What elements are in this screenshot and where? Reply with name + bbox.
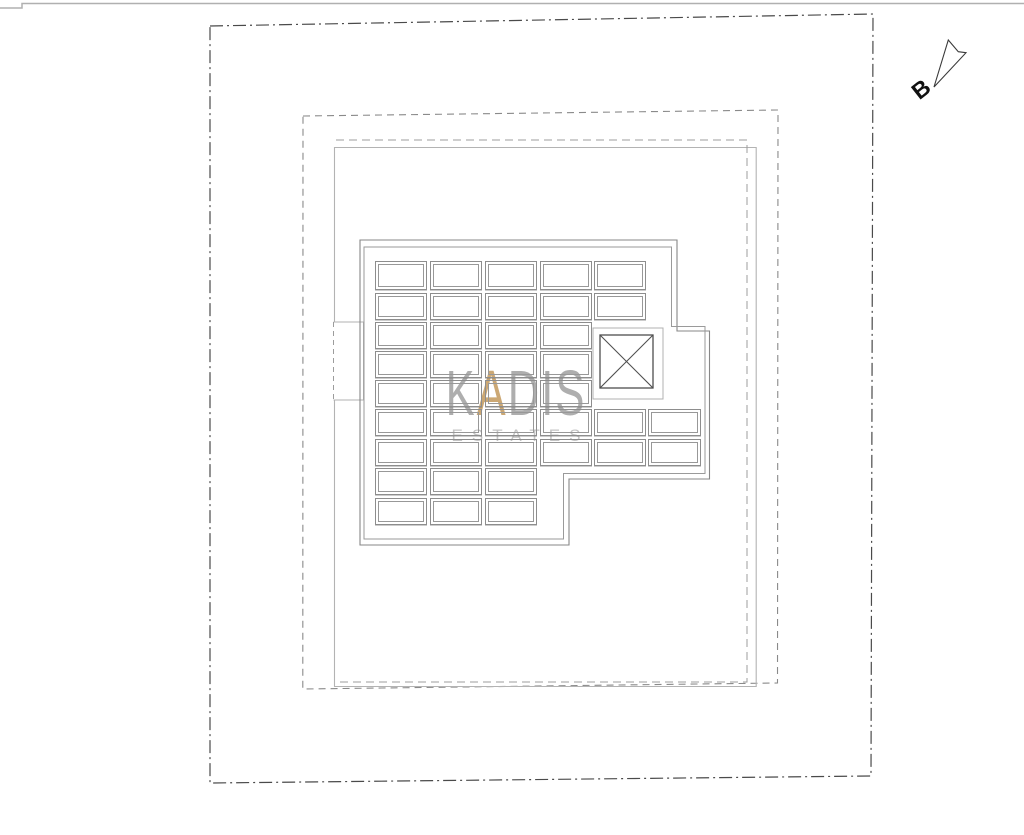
roof-panel-inner-frame	[488, 412, 535, 433]
roof-panel	[375, 351, 428, 378]
roof-panel	[648, 439, 701, 466]
roof-panel-inner-frame	[488, 325, 535, 346]
roof-panel-inner-frame	[433, 264, 480, 287]
roof-panel-inner-frame	[378, 412, 425, 433]
roof-panel	[594, 439, 647, 466]
roof-panel-inner-frame	[433, 325, 480, 346]
roof-panel-inner-frame	[378, 471, 425, 492]
roof-panel	[485, 439, 538, 466]
roof-panel-inner-frame	[488, 383, 535, 404]
roof-panel-inner-frame	[651, 442, 698, 463]
roof-panel	[430, 380, 483, 407]
roof-panel-grid	[0, 0, 1024, 835]
roof-panel	[540, 409, 593, 436]
roof-panel-inner-frame	[597, 442, 644, 463]
roof-panel-inner-frame	[433, 412, 480, 433]
roof-panel-inner-frame	[433, 383, 480, 404]
roof-panel	[375, 439, 428, 466]
roof-panel-inner-frame	[378, 296, 425, 317]
roof-panel	[594, 261, 647, 290]
roof-panel-inner-frame	[543, 442, 590, 463]
roof-panel-inner-frame	[378, 325, 425, 346]
roof-panel	[540, 439, 593, 466]
roof-panel	[540, 322, 593, 349]
roof-panel	[485, 409, 538, 436]
roof-panel-inner-frame	[488, 296, 535, 317]
roof-panel	[430, 261, 483, 290]
roof-panel-inner-frame	[488, 442, 535, 463]
roof-panel	[430, 322, 483, 349]
roof-panel	[594, 409, 647, 436]
roof-panel	[485, 351, 538, 378]
roof-panel-inner-frame	[488, 471, 535, 492]
roof-panel	[375, 468, 428, 495]
roof-panel	[375, 293, 428, 320]
roof-panel-inner-frame	[543, 383, 590, 404]
roof-panel	[648, 409, 701, 436]
roof-panel	[540, 380, 593, 407]
roof-panel	[375, 322, 428, 349]
roof-panel	[485, 380, 538, 407]
roof-panel-inner-frame	[378, 501, 425, 522]
roof-panel-inner-frame	[433, 471, 480, 492]
roof-panel-inner-frame	[488, 354, 535, 375]
roof-panel	[430, 468, 483, 495]
floor-plan-canvas: KADIS ESTATES B	[0, 0, 1024, 835]
roof-panel	[485, 468, 538, 495]
roof-panel-inner-frame	[597, 264, 644, 287]
roof-panel-inner-frame	[543, 296, 590, 317]
roof-panel-inner-frame	[433, 296, 480, 317]
roof-panel-inner-frame	[597, 412, 644, 433]
roof-panel	[430, 351, 483, 378]
roof-panel-inner-frame	[488, 501, 535, 522]
roof-panel-inner-frame	[378, 264, 425, 287]
roof-panel	[485, 293, 538, 320]
roof-panel	[430, 293, 483, 320]
roof-panel	[430, 439, 483, 466]
roof-panel-inner-frame	[543, 354, 590, 375]
roof-panel	[485, 261, 538, 290]
roof-panel	[540, 261, 593, 290]
roof-panel	[375, 409, 428, 436]
roof-panel	[540, 351, 593, 378]
roof-panel	[430, 498, 483, 525]
roof-panel-inner-frame	[378, 442, 425, 463]
roof-panel	[430, 409, 483, 436]
roof-panel-inner-frame	[651, 412, 698, 433]
roof-panel-inner-frame	[543, 325, 590, 346]
roof-panel-inner-frame	[488, 264, 535, 287]
roof-panel-inner-frame	[543, 412, 590, 433]
roof-panel	[485, 498, 538, 525]
roof-panel	[540, 293, 593, 320]
roof-panel	[375, 261, 428, 290]
roof-panel-inner-frame	[543, 264, 590, 287]
roof-panel	[375, 498, 428, 525]
roof-panel-inner-frame	[597, 296, 644, 317]
roof-panel-inner-frame	[433, 501, 480, 522]
roof-panel-inner-frame	[378, 354, 425, 375]
roof-panel	[375, 380, 428, 407]
roof-panel	[485, 322, 538, 349]
roof-panel-inner-frame	[378, 383, 425, 404]
roof-panel-inner-frame	[433, 354, 480, 375]
roof-panel-inner-frame	[433, 442, 480, 463]
roof-panel	[594, 293, 647, 320]
